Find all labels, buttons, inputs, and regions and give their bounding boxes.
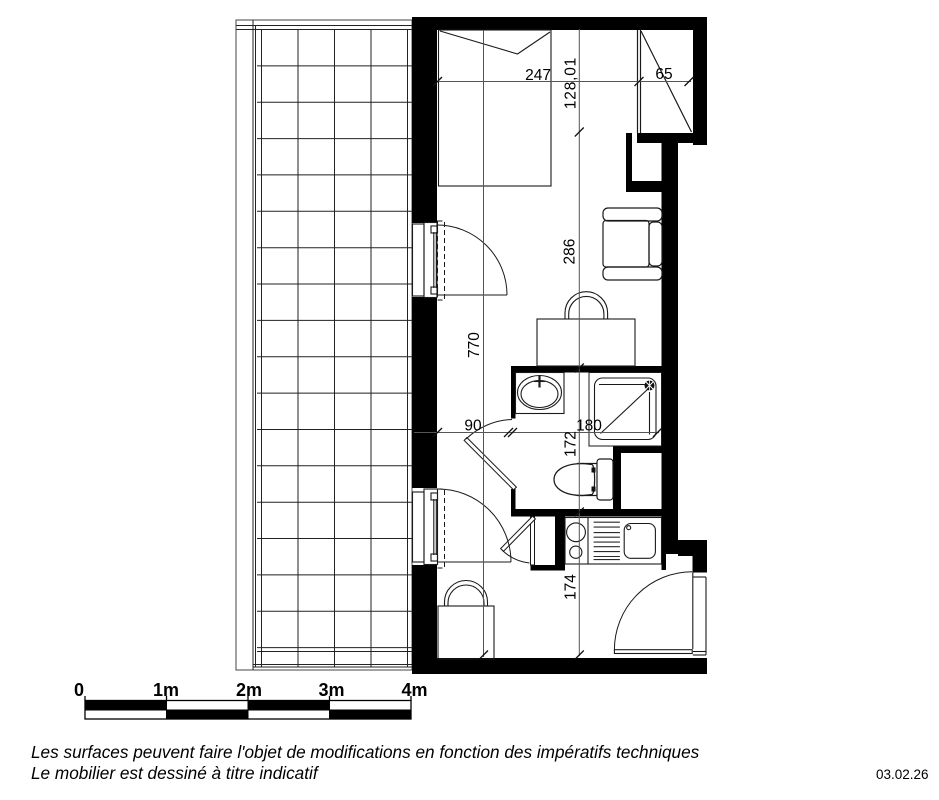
svg-text:770: 770	[466, 332, 483, 358]
svg-text:65: 65	[655, 66, 672, 83]
svg-text:0: 0	[74, 680, 84, 700]
svg-text:90: 90	[464, 418, 482, 435]
svg-text:128,01: 128,01	[563, 57, 580, 109]
svg-text:1m: 1m	[153, 680, 179, 700]
svg-text:172: 172	[563, 431, 580, 457]
svg-text:2m: 2m	[236, 680, 262, 700]
svg-text:247: 247	[525, 67, 551, 84]
svg-text:3m: 3m	[318, 680, 344, 700]
svg-text:286: 286	[562, 239, 579, 265]
svg-text:174: 174	[563, 574, 580, 600]
svg-text:180: 180	[576, 418, 602, 435]
svg-text:4m: 4m	[401, 680, 427, 700]
